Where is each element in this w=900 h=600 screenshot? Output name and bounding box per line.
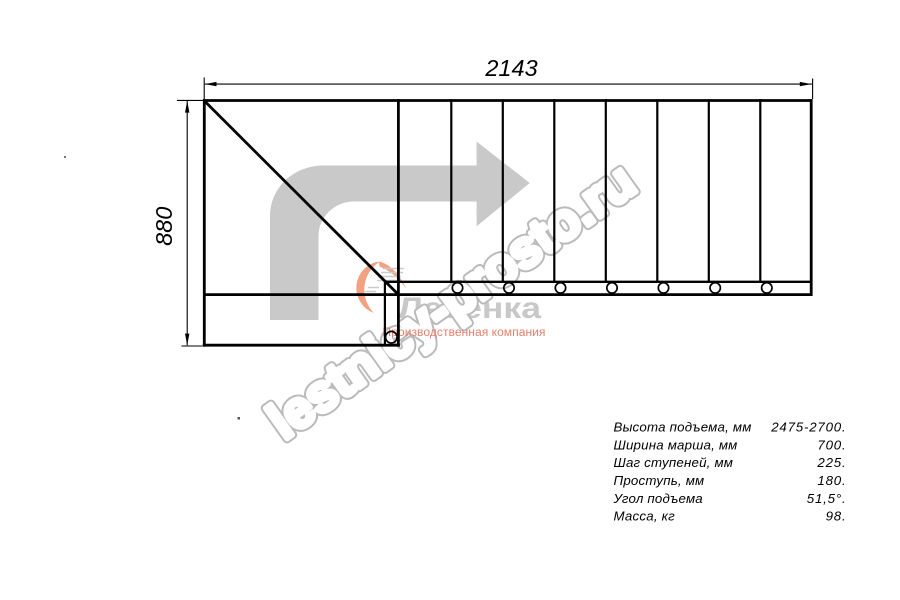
svg-text:Производственная компания: Производственная компания (383, 327, 546, 339)
svg-text:Угол подъема: Угол подъема (613, 491, 703, 506)
svg-text:Высота подъема, мм: Высота подъема, мм (614, 420, 752, 435)
svg-text:180.: 180. (817, 473, 846, 488)
svg-text:2475-2700.: 2475-2700. (770, 420, 846, 435)
svg-text:880: 880 (151, 207, 177, 246)
svg-text:700.: 700. (817, 437, 846, 452)
svg-text:Масса, кг: Масса, кг (614, 509, 676, 524)
svg-text:2143: 2143 (484, 55, 537, 81)
svg-text:Шаг ступеней, мм: Шаг ступеней, мм (614, 455, 734, 470)
svg-text:Ширина марша, мм: Ширина марша, мм (614, 437, 738, 452)
svg-text:98.: 98. (826, 509, 847, 524)
svg-text:51,5°.: 51,5°. (807, 491, 847, 506)
svg-text:225.: 225. (816, 455, 846, 470)
svg-text:Проступь, мм: Проступь, мм (614, 473, 705, 488)
